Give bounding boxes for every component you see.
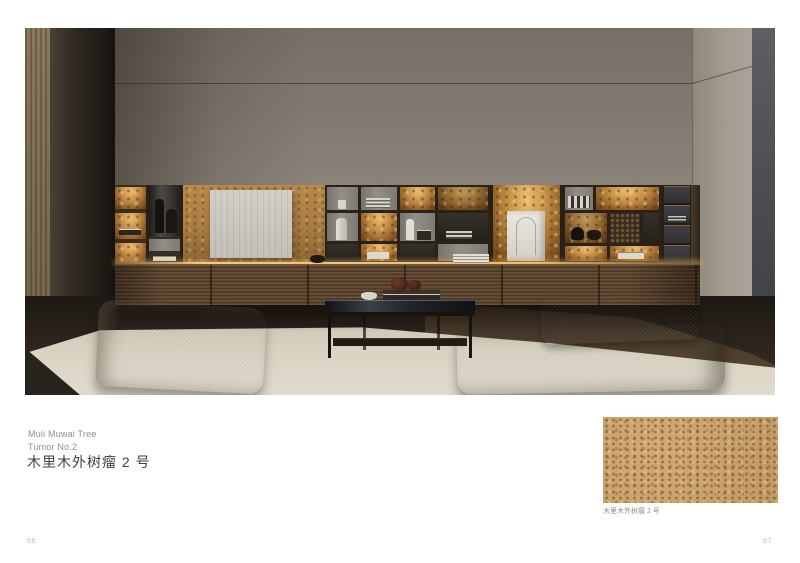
dark-cell	[400, 244, 435, 261]
ottoman-beige-left	[95, 300, 267, 395]
drape-arch-line	[516, 217, 536, 255]
backlit-cell	[596, 187, 659, 210]
under-shelf-light	[115, 262, 700, 264]
shelf-cell	[361, 187, 397, 210]
backlit-cell	[361, 244, 397, 261]
glass-cell	[664, 205, 690, 223]
unit-frame	[661, 185, 664, 263]
book-stack	[668, 216, 686, 222]
open-grid-shelves	[325, 185, 490, 263]
backlit-cell	[610, 246, 659, 261]
white-books	[618, 252, 644, 259]
dark-bowl	[587, 230, 601, 240]
book-stack	[446, 231, 472, 239]
glass-cell	[664, 245, 690, 262]
table-leg	[328, 312, 331, 358]
mirror-cell	[149, 239, 180, 251]
swatch-caption: 木里木外树瘤 2 号	[603, 506, 660, 516]
unit-frame	[180, 185, 183, 263]
backlit-cubby	[115, 243, 146, 262]
counter-bowl	[310, 255, 325, 263]
backlit-cell	[400, 187, 435, 210]
dark-vase	[166, 209, 177, 233]
shelf-cell	[327, 213, 358, 241]
product-title-en-line1: Muli Muwai Tree	[28, 428, 97, 441]
dark-display-cell	[149, 185, 180, 237]
room-photo	[25, 28, 775, 395]
wall-artwork	[210, 190, 292, 258]
page-number-left: 06	[27, 538, 36, 545]
page-number-right: 07	[763, 538, 772, 545]
white-books	[367, 252, 389, 259]
shelf-cell	[400, 213, 435, 241]
unit-frame	[146, 185, 149, 263]
shelf-cell	[327, 187, 358, 210]
counter-book-stack	[453, 254, 489, 263]
dark-vase	[155, 199, 164, 233]
dark-cell	[643, 213, 659, 243]
burl-back-panel	[183, 185, 325, 263]
gourd-decor	[391, 277, 408, 291]
smoked-glass-column	[663, 185, 691, 263]
dark-cell	[327, 244, 358, 261]
white-bowl	[361, 292, 377, 300]
open-shelf	[149, 253, 180, 262]
book-row	[568, 196, 590, 208]
white-drape-art	[507, 211, 545, 261]
backlit-drape-niche	[493, 185, 561, 263]
backlit-cubby	[115, 213, 146, 239]
wall-seam-line	[115, 83, 692, 84]
book-stack	[153, 256, 176, 261]
backlit-cell	[565, 213, 607, 243]
right-gray-panel	[752, 28, 775, 340]
book-stack	[119, 229, 141, 235]
glass-cell	[664, 225, 690, 243]
backlit-cubby	[115, 187, 146, 209]
gourd-decor	[408, 280, 421, 291]
unit-frame	[560, 185, 563, 263]
book-stack	[417, 230, 431, 240]
white-cup	[338, 200, 346, 209]
backlit-cell	[565, 246, 607, 261]
backlit-cell	[438, 187, 488, 210]
material-swatch	[603, 417, 778, 503]
table-lower-shelf	[333, 338, 467, 346]
catalog-spread: Muli Muwai Tree Tumor No.2 木里木外树瘤 2 号 木里…	[0, 0, 800, 563]
table-books	[383, 290, 440, 300]
unit-frame	[490, 185, 493, 263]
white-vase	[336, 218, 347, 240]
coffee-table-top	[325, 300, 475, 312]
coffee-table-apron	[325, 312, 475, 316]
dark-cell	[438, 213, 488, 241]
product-title-zh: 木里木外树瘤 2 号	[27, 452, 151, 472]
ottoman-gray-front	[456, 323, 725, 395]
shelf-cell	[565, 187, 593, 210]
mixed-shelves	[563, 185, 661, 263]
backlit-cell	[361, 213, 397, 241]
dark-burl-art	[610, 213, 640, 243]
white-bottle	[406, 219, 414, 240]
book-stack	[366, 198, 390, 208]
glass-cell	[664, 186, 690, 203]
product-title-en: Muli Muwai Tree Tumor No.2	[28, 428, 97, 454]
dark-wardrobe-panel	[50, 28, 115, 341]
dark-bowl	[571, 227, 584, 240]
unit-end-panel	[691, 185, 700, 263]
